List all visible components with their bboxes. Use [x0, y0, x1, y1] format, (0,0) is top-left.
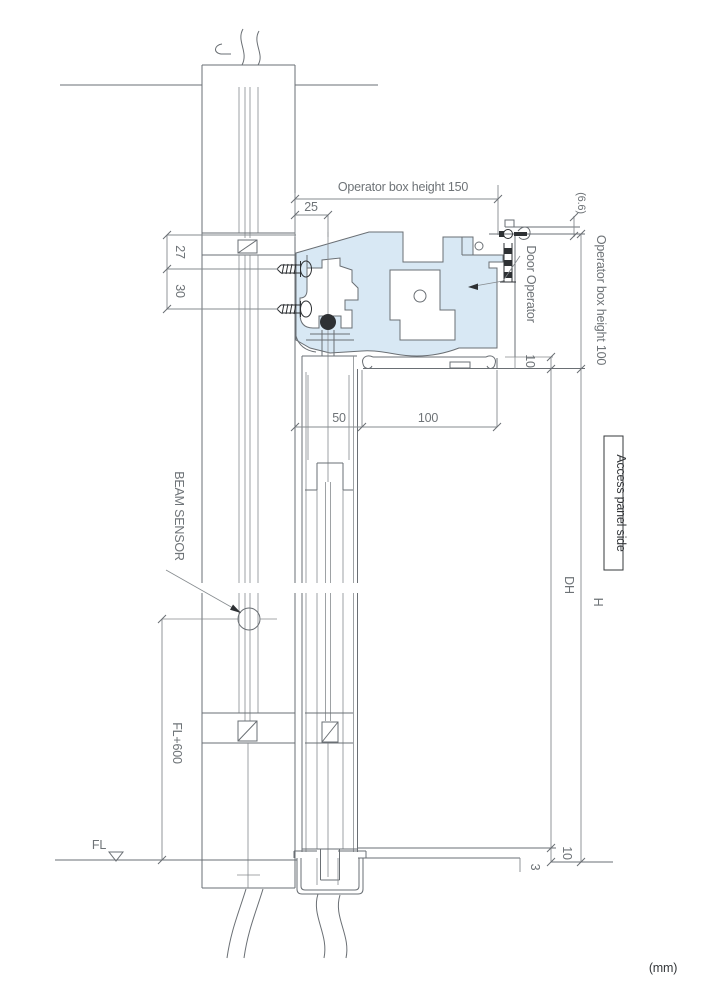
label-dh: DH — [562, 576, 576, 594]
dim-operator-box-height-150: Operator box height 150 — [338, 180, 468, 194]
label-beam-sensor: BEAM SENSOR — [172, 471, 186, 561]
break-line-under-track — [316, 894, 325, 958]
bottom-rail-lines — [202, 713, 295, 743]
dim-50-100-lines — [295, 370, 497, 427]
door-bottom-guide — [302, 849, 357, 880]
track-inner — [301, 858, 359, 890]
track-outer — [297, 858, 363, 894]
dim-operator-box-height-100: Operator box height 100 — [594, 235, 608, 365]
wall-centerline — [237, 743, 260, 888]
floor-lines-right — [358, 848, 556, 858]
beam-sensor-symbol — [238, 608, 260, 630]
glazing-insert — [305, 463, 353, 490]
door-panel — [302, 356, 358, 880]
glazing-pocket-mid — [239, 255, 258, 713]
break-line-under-track — [338, 895, 347, 958]
dim-25: 25 — [304, 200, 318, 214]
break-hook-top — [215, 44, 231, 54]
unit-note: (mm) — [649, 961, 677, 975]
dim-6-6: (6.6) — [575, 192, 587, 214]
label-fl600: FL+600 — [170, 722, 184, 764]
break-line-top — [241, 29, 244, 65]
dim-27: 27 — [173, 245, 187, 259]
label-h: H — [591, 598, 605, 607]
label-access-panel-side: Access panel side — [614, 454, 628, 552]
glazing-beads — [317, 490, 343, 849]
label-door-operator: Door Operator — [524, 245, 538, 322]
break-line-bottom — [227, 889, 246, 958]
glazing-pocket-top — [239, 87, 258, 238]
transom-lines — [202, 233, 295, 255]
beam-sensor-leader — [166, 570, 240, 612]
dim-3: 3 — [528, 864, 542, 871]
glass-pane-wall — [245, 255, 250, 721]
hanger-roller — [320, 314, 336, 330]
beam-sensor-group — [109, 570, 277, 861]
access-panel-label: Access panel side — [604, 436, 628, 570]
track-lips — [294, 851, 366, 858]
door-glazing-block-diagonal — [322, 722, 338, 742]
glazing-block-bottom-diagonal — [238, 721, 257, 741]
door-bottom-rail — [305, 713, 353, 743]
section-drawing: Operator box height 150 25 27 30 50 100 … — [0, 0, 726, 991]
belt-end — [475, 242, 483, 250]
glazing-block-top-diagonal — [238, 240, 257, 253]
dim-50: 50 — [332, 411, 346, 425]
dim-10-top: 10 — [523, 354, 537, 368]
cover-clip — [450, 362, 470, 368]
break-line-bottom — [244, 889, 263, 958]
door-inner-faces — [306, 356, 354, 852]
cover-end-curl-left — [363, 356, 373, 368]
drawing-canvas: Operator box height 150 25 27 30 50 100 … — [0, 0, 726, 991]
door-glass-pane — [326, 482, 331, 721]
break-line-top — [257, 31, 260, 65]
dim-dh-10-3-lines — [520, 357, 551, 872]
dim-30: 30 — [173, 284, 187, 298]
dim-10-bottom: 10 — [560, 846, 574, 860]
dim-100: 100 — [418, 411, 439, 425]
label-fl: FL — [92, 838, 106, 852]
cover-end-curl-right — [486, 356, 497, 368]
